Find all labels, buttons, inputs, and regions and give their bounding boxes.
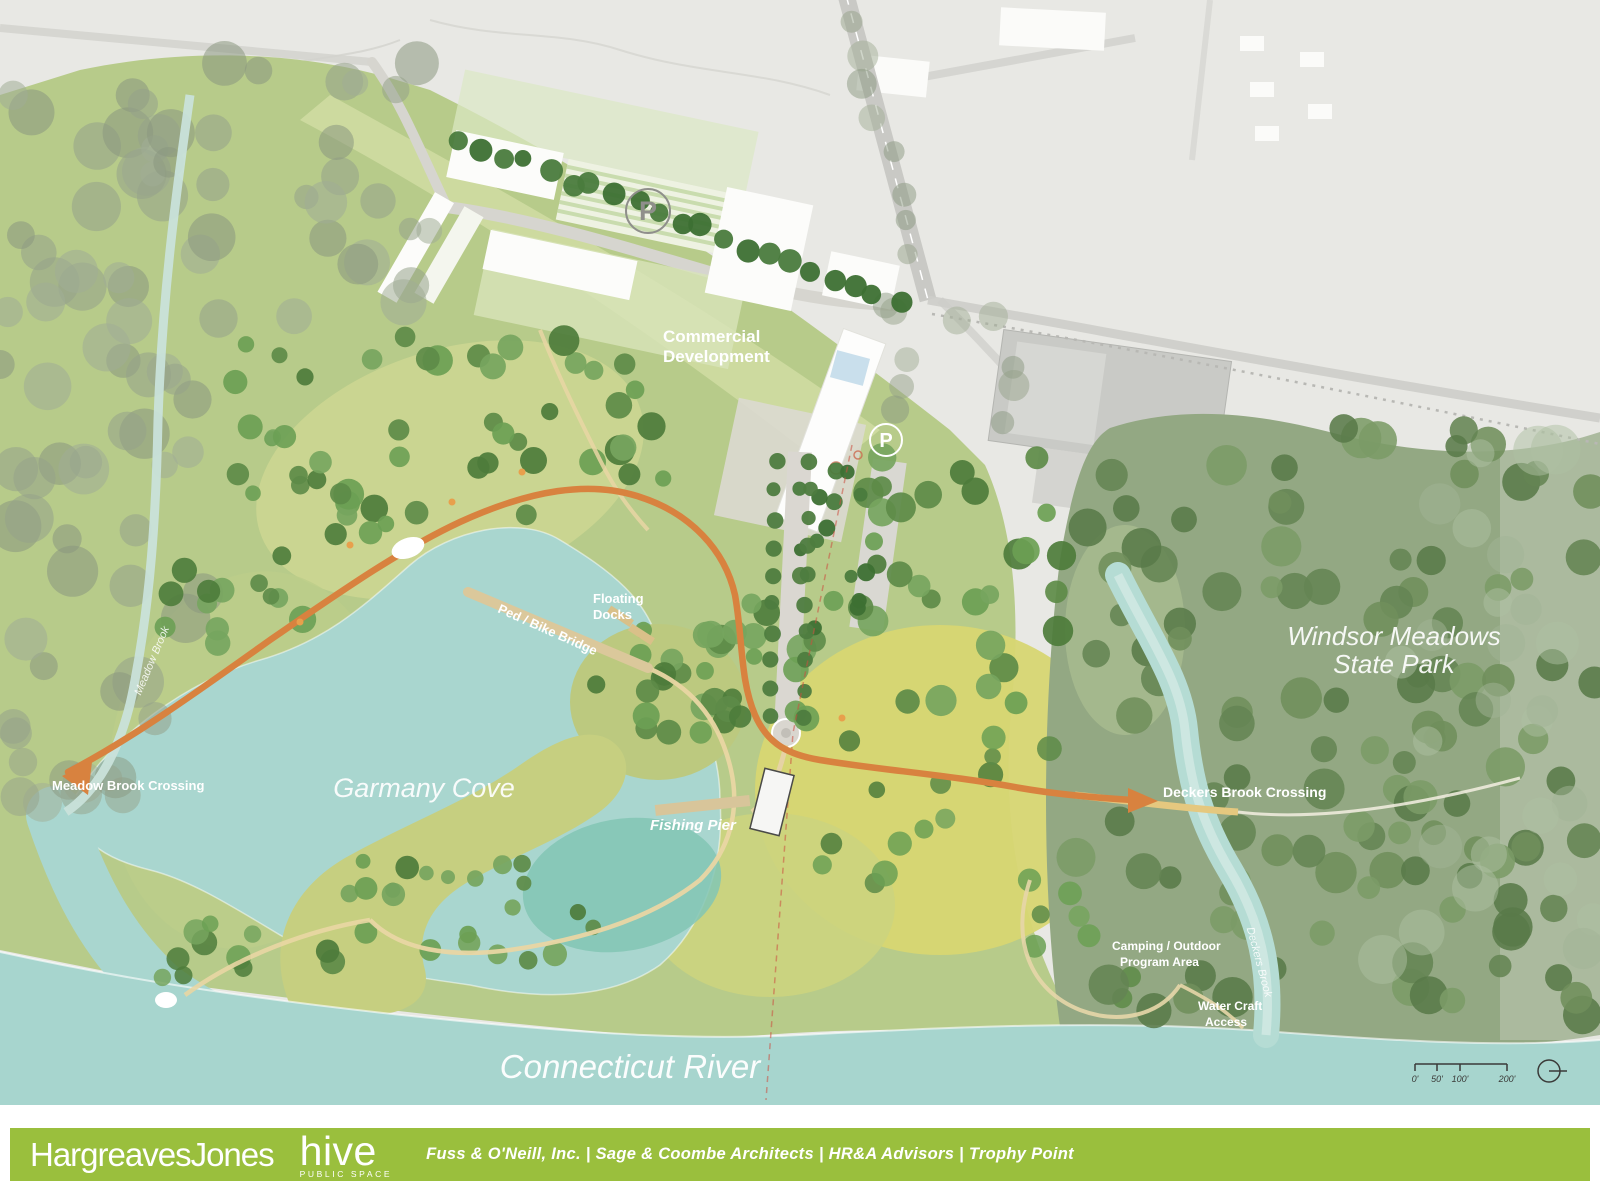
site-plan-map: P P Commercial Development Garmany Cove … (0, 0, 1600, 1105)
tree (202, 916, 219, 933)
tree (355, 877, 378, 900)
tree (1089, 965, 1129, 1005)
tree (584, 361, 603, 380)
tree (984, 748, 1001, 765)
roundabout-center (781, 728, 791, 738)
tree (1476, 683, 1511, 718)
tree (821, 833, 843, 855)
tree (419, 866, 434, 881)
tree (195, 114, 232, 151)
label-water-craft-line2: Access (1205, 1015, 1247, 1029)
tree (764, 595, 779, 610)
tree (655, 470, 671, 486)
site-plan-svg: P P Commercial Development Garmany Cove … (0, 0, 1600, 1105)
tree (515, 150, 532, 167)
tree (895, 689, 919, 713)
tree (1359, 421, 1397, 459)
tree (1168, 627, 1192, 651)
tree (914, 481, 942, 509)
label-connecticut-river: Connecticut River (500, 1048, 762, 1085)
tree (154, 969, 171, 986)
tree (1025, 446, 1048, 469)
scale-tick-50: 50' (1431, 1074, 1443, 1084)
tree (1489, 955, 1512, 978)
tree (405, 501, 429, 525)
hargreaves-jones-logo: HargreavesJones (30, 1136, 274, 1174)
tree (746, 648, 762, 664)
tree (825, 270, 846, 291)
tree (697, 621, 724, 648)
tree (441, 870, 455, 884)
tree (714, 230, 733, 249)
tree (319, 125, 354, 160)
tree (759, 243, 781, 265)
label-deckers-brook-crossing: Deckers Brook Crossing (1163, 784, 1326, 800)
tree (889, 374, 914, 399)
tree (516, 876, 531, 891)
tree (469, 139, 492, 162)
page: P P Commercial Development Garmany Cove … (0, 0, 1600, 1200)
tree (1522, 797, 1559, 834)
tree (1358, 935, 1407, 984)
tree (477, 452, 498, 473)
tree (976, 631, 1005, 660)
tree (541, 403, 558, 420)
tree (356, 854, 371, 869)
tree (504, 899, 520, 915)
tree (199, 299, 237, 337)
tree (238, 336, 254, 352)
tree (493, 855, 512, 874)
tree (4, 618, 47, 661)
tree (892, 183, 916, 207)
tree (1171, 507, 1197, 533)
tree (172, 558, 197, 583)
tree (618, 463, 640, 485)
tree (857, 563, 875, 581)
tree (854, 488, 868, 502)
label-camping-line2: Program Area (1120, 955, 1199, 969)
tree (1494, 883, 1528, 917)
tree (606, 392, 633, 419)
tree (467, 870, 484, 887)
label-commercial-line2: Development (663, 347, 770, 366)
tree (1069, 509, 1107, 547)
tree (801, 454, 818, 471)
tree (766, 541, 782, 557)
feature-dot (449, 499, 456, 506)
tree (53, 524, 82, 553)
tree (480, 353, 506, 379)
hive-logo: hive PUBLIC SPACE (300, 1131, 392, 1179)
tree (1329, 414, 1358, 443)
context-building (1300, 52, 1324, 67)
tree (802, 511, 816, 525)
tree (1113, 495, 1140, 522)
tree (1047, 541, 1076, 570)
tree (245, 57, 273, 85)
tree (1419, 483, 1460, 524)
tree (767, 482, 781, 496)
tree (205, 631, 230, 656)
tree (998, 370, 1029, 401)
tree (764, 625, 781, 642)
tree (813, 855, 832, 874)
tree (976, 674, 1001, 699)
tree (120, 514, 152, 546)
tree (1202, 572, 1241, 611)
tree (291, 476, 310, 495)
tree (498, 335, 524, 361)
tree (238, 414, 263, 439)
tree (128, 89, 158, 119)
tree (915, 820, 934, 839)
tree (778, 249, 802, 273)
tree (896, 210, 916, 230)
tree (577, 172, 599, 194)
label-floating-docks-line2: Docks (593, 607, 632, 622)
tree (382, 883, 405, 906)
tree (688, 213, 711, 236)
tree (841, 11, 863, 33)
tree (891, 292, 912, 313)
tree (1467, 439, 1495, 467)
tree (839, 730, 860, 751)
tree (188, 213, 236, 261)
tree (1043, 616, 1073, 646)
tree (1058, 882, 1082, 906)
tree (865, 532, 883, 550)
tree (167, 947, 190, 970)
tree (767, 512, 784, 529)
tree (13, 457, 55, 499)
tree (1159, 866, 1182, 889)
tree (316, 940, 339, 963)
scale-tick-200: 200' (1498, 1074, 1516, 1084)
tree (991, 411, 1014, 434)
tree (519, 951, 538, 970)
tree (799, 623, 815, 639)
tree (762, 681, 778, 697)
tree (330, 483, 351, 504)
tree (1311, 736, 1337, 762)
tree (1388, 822, 1411, 845)
tree (273, 425, 296, 448)
tree (540, 159, 563, 182)
tree (103, 262, 134, 293)
tree (296, 368, 313, 385)
tree (610, 434, 636, 460)
tree (197, 580, 220, 603)
tree (416, 218, 442, 244)
tree (26, 283, 65, 322)
tree (859, 105, 886, 132)
tree (223, 370, 247, 394)
tree (1293, 835, 1326, 868)
tree (389, 447, 410, 468)
tree (1310, 921, 1335, 946)
tree (395, 327, 416, 348)
tree (818, 520, 835, 537)
tree (47, 546, 98, 597)
label-windsor-meadows-line1: Windsor Meadows (1287, 621, 1501, 651)
lawn-oval-small (155, 992, 177, 1008)
tree (1399, 910, 1445, 956)
tree (196, 168, 229, 201)
tree (1540, 895, 1567, 922)
tree (58, 444, 109, 495)
tree (800, 262, 820, 282)
tree (656, 720, 681, 745)
tree (925, 685, 956, 716)
tree (516, 504, 537, 525)
tree (1390, 549, 1412, 571)
tree (765, 568, 781, 584)
tree (737, 239, 760, 262)
tree (881, 396, 909, 424)
tree (513, 855, 531, 873)
tree (1, 777, 40, 816)
tree (1440, 988, 1466, 1014)
label-water-craft-line1: Water Craft (1198, 999, 1262, 1013)
context-building (1308, 104, 1332, 119)
tree (1343, 811, 1374, 842)
tree (416, 347, 440, 371)
label-commercial-line1: Commercial (663, 327, 760, 346)
hive-logo-sub: PUBLIC SPACE (300, 1170, 392, 1179)
tree (1057, 838, 1096, 877)
tree (979, 302, 1008, 331)
tree (272, 347, 288, 363)
tree (982, 726, 1006, 750)
label-floating-docks-line1: Floating (593, 591, 644, 606)
tree (1271, 454, 1298, 481)
tree (1281, 677, 1322, 718)
tree (395, 856, 419, 880)
tree (690, 721, 712, 743)
tree (1126, 853, 1162, 889)
tree (1357, 876, 1380, 899)
tree (1069, 906, 1090, 927)
tree (872, 861, 898, 887)
tree (729, 705, 751, 727)
tree (202, 41, 247, 86)
tree (1393, 751, 1416, 774)
tree (1445, 435, 1467, 457)
tree (380, 279, 426, 325)
tree (1269, 491, 1292, 514)
tree (24, 363, 72, 411)
tree (888, 832, 912, 856)
tree (1261, 526, 1301, 566)
tree (83, 323, 131, 371)
label-fishing-pier: Fishing Pier (650, 817, 737, 834)
tree (797, 652, 813, 668)
tree (1511, 832, 1540, 861)
tree (1206, 445, 1247, 486)
tree (614, 353, 635, 374)
tree (886, 492, 916, 522)
tree (587, 675, 605, 693)
tree (570, 904, 586, 920)
feature-dot (347, 542, 354, 549)
tree (9, 748, 37, 776)
tree (1045, 581, 1068, 604)
parking-p-icon: P (639, 196, 657, 226)
tree (1082, 640, 1110, 668)
tree (1536, 622, 1579, 665)
tree (305, 181, 348, 224)
tree (342, 70, 368, 96)
tree (7, 221, 35, 249)
tree (250, 574, 268, 592)
tree (1005, 692, 1028, 715)
tree (1078, 924, 1101, 947)
tree (1032, 905, 1050, 923)
tree (72, 182, 121, 231)
tree (1492, 913, 1530, 951)
tree (887, 561, 913, 587)
tree (696, 662, 714, 680)
tree (803, 482, 817, 496)
tree (1527, 695, 1559, 727)
tree (1037, 736, 1062, 761)
tree (325, 523, 347, 545)
tree (159, 581, 184, 606)
tree (227, 463, 249, 485)
feature-dot (839, 715, 846, 722)
tree (824, 591, 844, 611)
consultant-credits: Fuss & O'Neill, Inc. | Sage & Coombe Arc… (426, 1145, 1074, 1164)
tree (1560, 982, 1592, 1014)
tree (796, 597, 812, 613)
label-meadow-brook-crossing: Meadow Brook Crossing (52, 778, 204, 793)
tree (769, 453, 785, 469)
tree (637, 412, 665, 440)
tree (108, 412, 147, 451)
tree (1544, 862, 1578, 896)
tree (276, 298, 312, 334)
tree (309, 220, 346, 257)
tree (382, 76, 409, 103)
tree (1413, 726, 1442, 755)
tree (362, 349, 383, 370)
label-windsor-meadows-line2: State Park (1333, 649, 1456, 679)
scale-tick-100: 100' (1452, 1074, 1469, 1084)
tree (1361, 736, 1389, 764)
context-building (999, 7, 1106, 50)
tree (1261, 834, 1293, 866)
tree (245, 485, 261, 501)
tree (884, 141, 905, 162)
tree (762, 651, 778, 667)
tree (309, 451, 332, 474)
tree (1219, 706, 1255, 742)
tree (795, 710, 811, 726)
tree (1417, 546, 1446, 575)
tree (852, 593, 867, 608)
tree (894, 347, 919, 372)
tree (1453, 509, 1492, 548)
tree (763, 708, 779, 724)
tree (1261, 576, 1283, 598)
tree (980, 585, 999, 604)
tree (1096, 459, 1128, 491)
feature-dot (297, 619, 304, 626)
tree (494, 149, 514, 169)
tree (360, 183, 395, 218)
tree (603, 183, 626, 206)
tree (847, 41, 878, 72)
tree (1487, 536, 1524, 573)
tree (459, 926, 476, 943)
tree (1324, 688, 1349, 713)
tree (797, 684, 811, 698)
tree (935, 809, 955, 829)
tree (897, 244, 917, 264)
context-building (1255, 126, 1279, 141)
footer-bar: HargreavesJones hive PUBLIC SPACE Fuss &… (10, 1128, 1590, 1181)
hive-logo-main: hive (300, 1131, 392, 1172)
scale-tick-0: 0' (1412, 1074, 1419, 1084)
tree (800, 567, 816, 583)
tree (869, 782, 886, 799)
context-building (1250, 82, 1274, 97)
tree (1037, 504, 1055, 522)
tree (1012, 537, 1039, 564)
tree (950, 460, 975, 485)
tree (1116, 697, 1152, 733)
tree (359, 521, 382, 544)
tree (742, 594, 762, 614)
feature-dot (519, 469, 526, 476)
tree (845, 570, 858, 583)
label-camping-line1: Camping / Outdoor (1112, 939, 1221, 953)
tree (492, 422, 514, 444)
tree (799, 538, 815, 554)
tree (1483, 588, 1512, 617)
tree (1304, 569, 1340, 605)
parking-p-icon: P (879, 430, 892, 452)
tree (244, 925, 261, 942)
tree (1419, 825, 1463, 869)
tree (862, 285, 882, 305)
tree (847, 69, 877, 99)
tree (449, 131, 468, 150)
tree (5, 494, 54, 543)
tree (263, 588, 280, 605)
context-building (1240, 36, 1264, 51)
tree (636, 679, 659, 702)
tree (337, 244, 378, 285)
tree (943, 307, 971, 335)
tree (633, 702, 660, 729)
tree (1531, 425, 1581, 475)
tree (388, 419, 409, 440)
tree (549, 325, 580, 356)
tree (55, 250, 98, 293)
tree (1452, 865, 1499, 912)
tree (1511, 594, 1542, 625)
label-garmany-cove: Garmany Cove (333, 773, 515, 803)
tree (272, 546, 291, 565)
